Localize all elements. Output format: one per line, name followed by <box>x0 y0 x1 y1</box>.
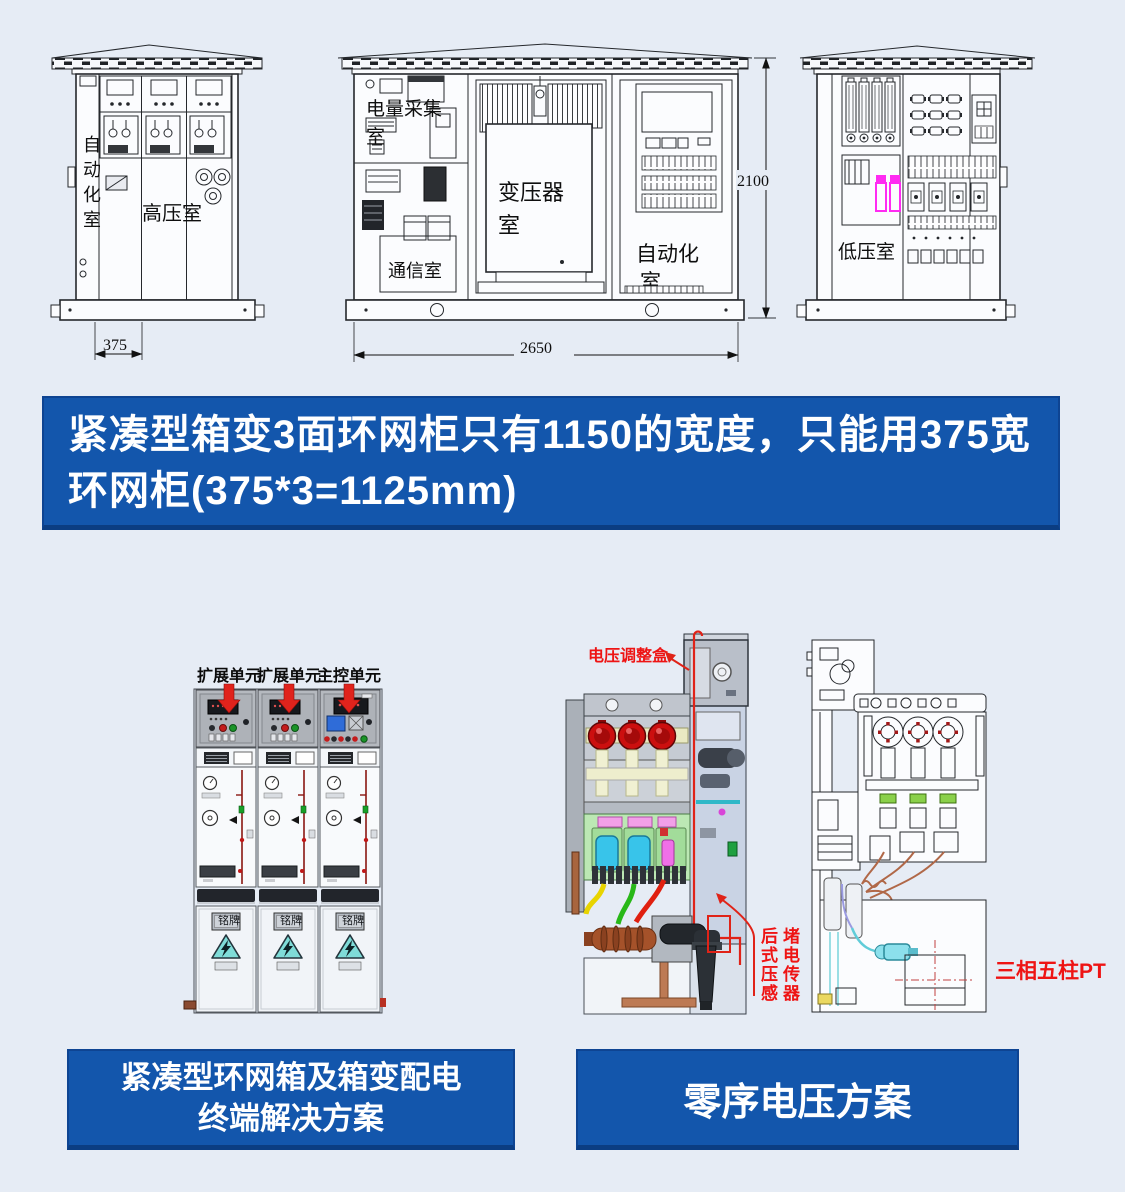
label-hv-room: 高压室 <box>142 202 202 225</box>
drawing-rmu: 扩展单元 扩展单元 主控单元 铭牌 铭牌 铭牌 <box>184 666 386 1013</box>
nameplate-1: 铭牌 <box>218 913 240 927</box>
main-banner: 紧凑型箱变3面环网柜只有1150的宽度，只能用375宽 环网柜(375*3=11… <box>42 396 1060 530</box>
label-unit-3: 主控单元 <box>317 666 381 685</box>
label-meter-room-l1: 电量采集 <box>366 98 442 120</box>
dim-375: 375 <box>103 337 127 354</box>
label-lv-room: 低压室 <box>838 241 895 263</box>
nameplate-3: 铭牌 <box>342 913 364 927</box>
technical-drawings: 高压室 375 电量采集 室 <box>0 0 1125 1192</box>
page: 高压室 375 电量采集 室 <box>0 0 1125 1192</box>
drawing-right-cabinet: 低压室 <box>797 46 1035 320</box>
label-pt: 三相五柱PT <box>995 959 1106 983</box>
label-sensor-col-right: 堵电传器 <box>777 927 802 1003</box>
nameplate-2: 铭牌 <box>280 913 302 927</box>
main-banner-line1: 紧凑型箱变3面环网柜只有1150的宽度，只能用375宽 <box>68 407 1058 463</box>
label-unit-1: 扩展单元 <box>197 666 261 685</box>
label-unit-2: 扩展单元 <box>257 666 321 685</box>
drawing-pt: 三相五柱PT <box>807 640 1106 1012</box>
solution-right-label: 零序电压方案 <box>683 1071 911 1126</box>
solution-left-line2: 终端解决方案 <box>69 1098 513 1139</box>
label-automation-room-vertical: 自动化室 <box>78 135 104 235</box>
dim-2650: 2650 <box>520 340 552 357</box>
solution-banner-left: 紧凑型环网箱及箱变配电 终端解决方案 <box>67 1049 515 1150</box>
dim-2100: 2100 <box>737 173 769 190</box>
label-transformer-l2: 室 <box>498 213 520 238</box>
drawing-cutaway: 电压调整盒 <box>566 632 754 1015</box>
label-comm-room: 通信室 <box>388 261 442 281</box>
label-voltage-box: 电压调整盒 <box>588 646 669 665</box>
red-bushings <box>589 720 676 750</box>
label-auto-room-l1: 自动化 <box>636 242 699 266</box>
label-meter-room-l2: 室 <box>366 126 385 148</box>
solution-left-line1: 紧凑型环网箱及箱变配电 <box>69 1057 513 1098</box>
solution-banner-right: 零序电压方案 <box>576 1049 1019 1150</box>
drawing-middle-cabinet: 电量采集 室 通信室 变压器 室 <box>338 44 782 362</box>
label-transformer-l1: 变压器 <box>498 180 564 205</box>
main-banner-line2: 环网柜(375*3=1125mm) <box>68 463 1058 519</box>
